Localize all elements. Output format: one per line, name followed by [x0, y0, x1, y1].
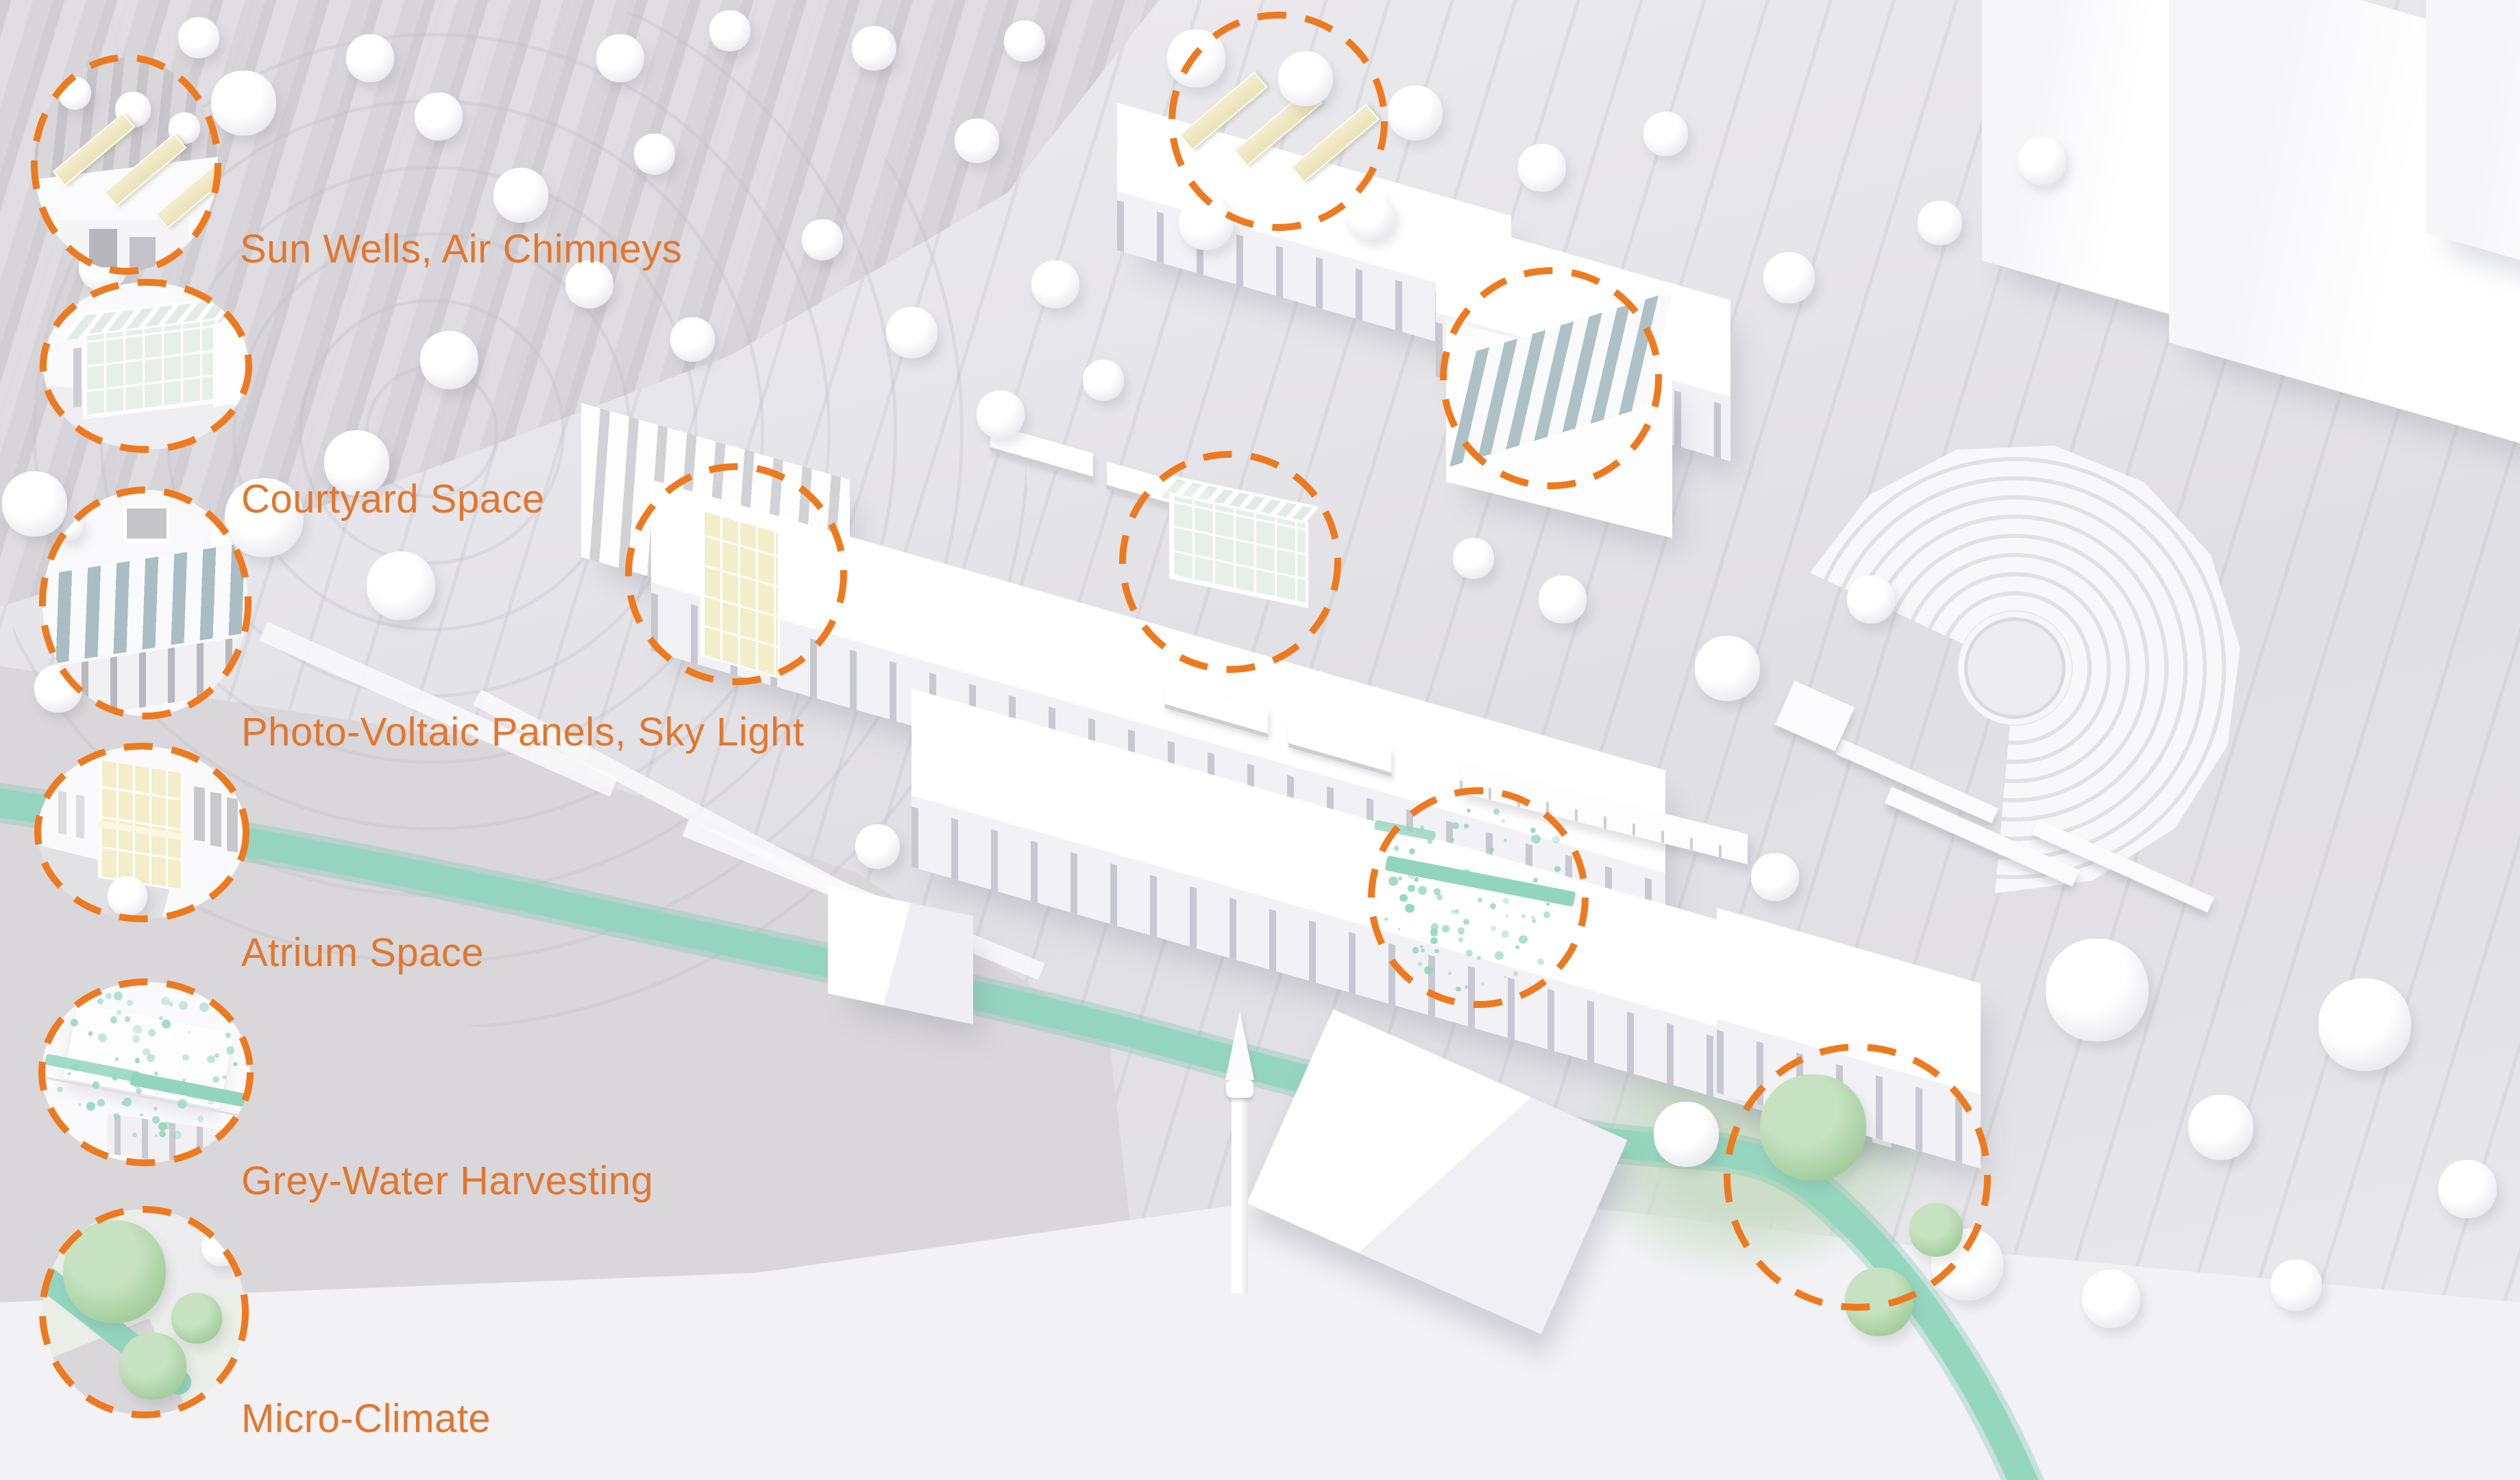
- tree: [2271, 1259, 2322, 1311]
- water-speckle: [215, 1053, 219, 1058]
- tree: [1167, 29, 1225, 88]
- vignette-window: [123, 505, 170, 542]
- tree: [2046, 939, 2149, 1041]
- water-speckle: [127, 1000, 133, 1006]
- water-speckle: [125, 1016, 130, 1022]
- water-speckle: [164, 1122, 171, 1129]
- water-speckle: [193, 1095, 197, 1099]
- tree: [1654, 1102, 1719, 1167]
- water-speckle: [117, 1010, 121, 1015]
- water-speckle: [154, 1107, 158, 1111]
- tree: [493, 168, 548, 223]
- water-speckle: [188, 1031, 191, 1033]
- legend-label-sun-wells: Sun Wells, Air Chimneys: [240, 226, 682, 272]
- tree: [1083, 360, 1124, 401]
- tree: [420, 331, 478, 389]
- legend-vignette-courtyard: [43, 282, 249, 449]
- tree: [2082, 1270, 2140, 1328]
- tree: [1004, 21, 1045, 62]
- water-speckle: [112, 1076, 117, 1081]
- legend-vignette-grey-water: [42, 982, 250, 1163]
- vignette-window: [210, 792, 221, 848]
- vignette-window: [194, 787, 205, 842]
- vignette-glass-box: [83, 318, 217, 419]
- legend-vignette-sun-wells: [34, 58, 218, 271]
- tree: [1031, 260, 1079, 308]
- tree: [596, 34, 644, 82]
- tree: [53, 510, 84, 541]
- green-tree: [63, 1220, 166, 1323]
- water-speckle: [71, 1064, 79, 1072]
- tree: [2319, 978, 2411, 1071]
- legend-label-courtyard: Courtyard Space: [241, 476, 545, 522]
- water-speckle: [93, 1081, 100, 1089]
- vignette-window: [89, 229, 117, 267]
- green-tree: [171, 1293, 222, 1344]
- water-speckle: [233, 1062, 237, 1066]
- water-speckle: [132, 1133, 137, 1137]
- vignette-window: [58, 791, 66, 835]
- tree: [1695, 636, 1760, 701]
- water-speckle: [71, 1019, 78, 1026]
- legend-label-micro-climate: Micro-Climate: [241, 1396, 491, 1442]
- tree: [201, 1229, 239, 1266]
- water-speckle: [121, 1101, 125, 1105]
- tree: [670, 317, 715, 362]
- tree: [886, 307, 938, 358]
- water-speckle: [57, 1087, 62, 1092]
- tree: [58, 77, 91, 110]
- legend-vignette-micro-climate: [42, 1209, 245, 1415]
- water-speckle: [226, 1046, 234, 1054]
- legend-vignette-pv-panels: [42, 490, 248, 716]
- tree: [802, 219, 843, 260]
- water-speckle: [78, 1103, 81, 1106]
- water-speckle: [156, 1093, 158, 1095]
- tree: [977, 391, 1025, 439]
- water-speckle: [178, 1099, 187, 1109]
- tree: [415, 92, 463, 140]
- vignette-window: [227, 798, 238, 853]
- water-speckle: [140, 1113, 143, 1117]
- water-speckle: [134, 1083, 140, 1089]
- vignette-facade: [60, 220, 189, 271]
- tree: [1453, 538, 1494, 579]
- tree: [1847, 576, 1895, 624]
- water-speckle: [113, 1113, 120, 1120]
- water-speckle: [110, 1016, 117, 1023]
- water-speckle: [123, 1074, 127, 1078]
- tree: [1751, 853, 1799, 901]
- tree: [1179, 195, 1234, 250]
- legend-vignette-atrium: [38, 746, 246, 919]
- vignette-window: [73, 347, 82, 407]
- water-speckle: [197, 1115, 204, 1122]
- tree: [1388, 86, 1443, 140]
- water-speckle: [68, 1072, 70, 1074]
- water-speckle: [162, 1020, 171, 1028]
- tree: [2438, 1160, 2497, 1218]
- green-tree: [1909, 1203, 1963, 1257]
- tree: [2018, 137, 2066, 185]
- water-speckle: [169, 1002, 173, 1007]
- tree: [852, 26, 896, 71]
- green-tree: [1760, 1074, 1866, 1181]
- water-speckle: [143, 1048, 149, 1055]
- legend-label-grey-water: Grey-Water Harvesting: [241, 1158, 653, 1204]
- water-speckle: [106, 993, 112, 999]
- water-speckle: [199, 1002, 208, 1011]
- tree: [1278, 51, 1333, 106]
- water-speckle: [207, 1055, 215, 1063]
- water-speckle: [182, 1054, 189, 1061]
- tree: [709, 10, 750, 51]
- water-speckle: [212, 1076, 219, 1083]
- tree: [2188, 1095, 2253, 1160]
- water-speckle: [97, 1099, 105, 1107]
- water-speckle: [86, 1102, 95, 1111]
- tree: [1643, 112, 1688, 156]
- legend-label-pv-panels: Photo-Voltaic Panels, Sky Light: [241, 709, 805, 755]
- legend-label-atrium: Atrium Space: [241, 930, 484, 976]
- tree: [1539, 576, 1587, 624]
- water-speckle: [132, 1035, 140, 1043]
- water-speckle: [136, 1088, 142, 1094]
- vignette-wall: [213, 317, 245, 408]
- tree: [855, 824, 900, 869]
- tree: [108, 876, 147, 916]
- tree: [1918, 201, 1962, 245]
- water-speckle: [135, 1058, 140, 1063]
- tree: [955, 119, 999, 163]
- water-speckle: [208, 1099, 214, 1105]
- water-speckle: [222, 1075, 227, 1080]
- tree: [211, 71, 276, 136]
- tree: [346, 34, 394, 82]
- water-speckle: [186, 1093, 191, 1097]
- water-speckle: [179, 1001, 188, 1010]
- tree: [178, 17, 219, 58]
- green-tree: [119, 1333, 186, 1400]
- green-tree: [1845, 1268, 1913, 1336]
- tree: [1518, 144, 1566, 192]
- vignette-window: [130, 237, 156, 271]
- tree: [1763, 252, 1815, 304]
- tree: [634, 134, 675, 175]
- site-model-rendering: Sun Wells, Air Chimneys Courtyard Space …: [0, 0, 2520, 1480]
- water-speckle: [173, 1131, 182, 1139]
- vignette-facade: [108, 1114, 239, 1163]
- water-speckle: [225, 1033, 231, 1038]
- water-speckle: [159, 1016, 163, 1020]
- tree: [367, 552, 435, 620]
- tree: [1347, 192, 1395, 240]
- water-speckle: [114, 991, 123, 1001]
- water-speckle: [98, 1033, 107, 1042]
- water-speckle: [188, 1083, 195, 1090]
- water-speckle: [97, 998, 103, 1004]
- vignette-window: [76, 795, 84, 839]
- water-speckle: [88, 1031, 93, 1035]
